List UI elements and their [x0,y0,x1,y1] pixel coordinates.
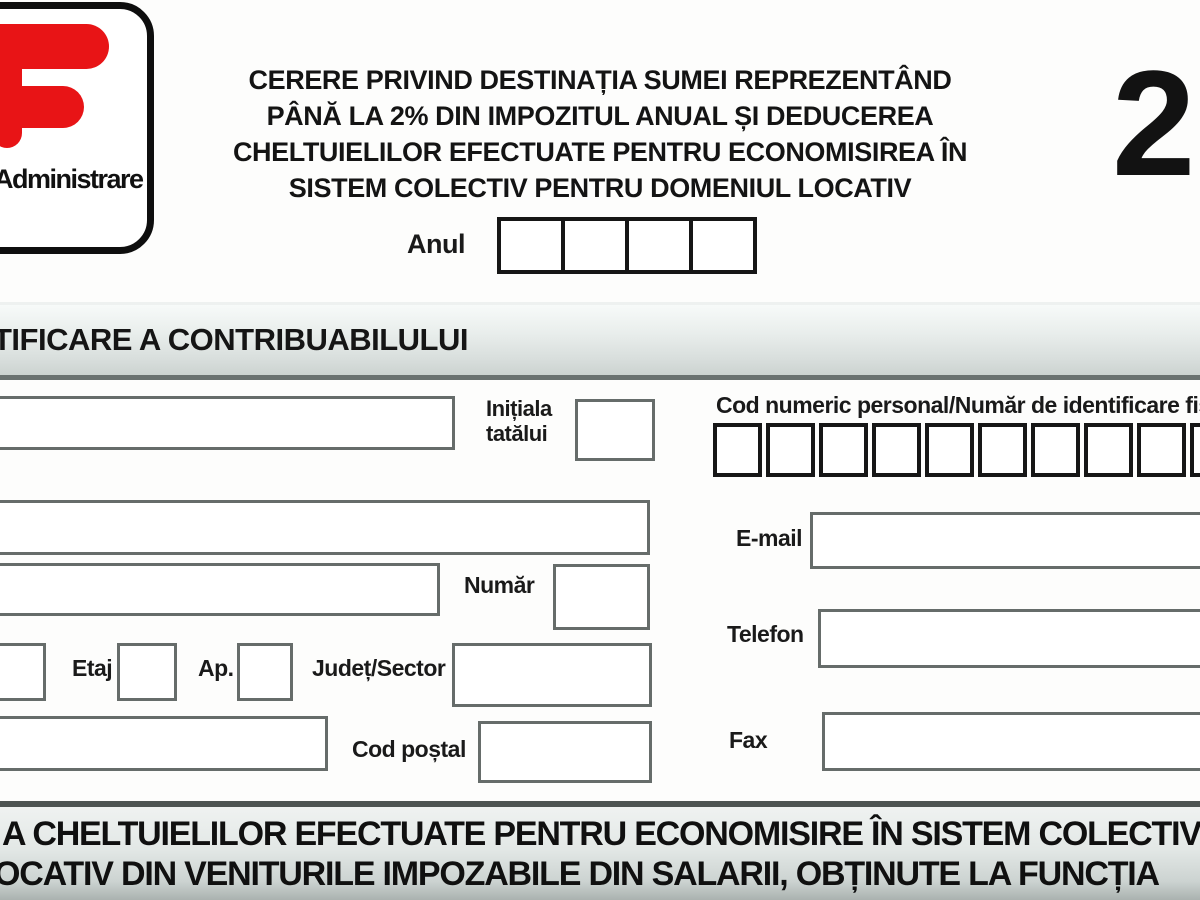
form-title-line: CERERE PRIVIND DESTINAȚIA SUMEI REPREZEN… [170,62,1030,98]
judet-label: Județ/Sector [312,655,445,682]
form-title-line: PÂNĂ LA 2% DIN IMPOZITUL ANUAL ȘI DEDUCE… [170,98,1030,134]
cnp-digit-cell[interactable] [1137,423,1186,477]
cod-postal-label: Cod poștal [352,736,466,763]
etaj-field[interactable] [117,643,177,701]
anaf-flag-icon [0,24,109,69]
form-title-line: SISTEM COLECTIV PENTRU DOMENIUL LOCATIV [170,170,1030,206]
logo-caption: Administrare [0,164,143,195]
cnp-digit-cell[interactable] [872,423,921,477]
telefon-field[interactable] [818,609,1200,668]
cnp-digit-cell[interactable] [1031,423,1080,477]
email-field[interactable] [810,512,1200,569]
section-deduction-bar: A CHELTUIELILOR EFECTUATE PENTRU ECONOMI… [0,801,1200,900]
telefon-label: Telefon [727,621,804,648]
fax-label: Fax [729,727,767,754]
form-title-line: CHELTUIELILOR EFECTUATE PENTRU ECONOMISI… [170,134,1030,170]
form-page: Administrare CERERE PRIVIND DESTINAȚIA S… [0,0,1200,900]
localitate-field[interactable] [0,716,328,771]
cnp-digit-cell[interactable] [1084,423,1133,477]
year-input-cells[interactable] [497,217,757,274]
form-title: CERERE PRIVIND DESTINAȚIA SUMEI REPREZEN… [170,62,1030,206]
section-deduction-line1: A CHELTUIELILOR EFECTUATE PENTRU ECONOMI… [2,815,1200,854]
year-digit-cell[interactable] [625,221,689,270]
cod-postal-field[interactable] [478,721,652,783]
numar-field[interactable] [553,564,650,630]
section-identification-bar: TIFICARE A CONTRIBUABILULUI [0,302,1200,380]
prenume-field[interactable] [0,500,650,555]
initiala-field[interactable] [575,399,655,461]
etaj-label: Etaj [72,655,112,682]
section-identification-title: TIFICARE A CONTRIBUABILULUI [0,322,468,358]
fax-field[interactable] [822,712,1200,771]
strada-field[interactable] [0,563,440,616]
name-field[interactable] [0,396,455,450]
cnp-digit-cell[interactable] [978,423,1027,477]
cnp-label: Cod numeric personal/Număr de identifica… [716,392,1200,419]
year-digit-cell[interactable] [689,221,753,270]
cnp-digit-cell[interactable] [1190,423,1200,477]
numar-label: Număr [464,572,534,599]
cnp-digit-cell[interactable] [766,423,815,477]
section-deduction-line2: OCATIV DIN VENITURILE IMPOZABILE DIN SAL… [0,855,1159,894]
anaf-logo: Administrare [0,2,154,254]
email-label: E-mail [736,525,802,552]
cnp-digit-cell[interactable] [925,423,974,477]
form-number: 2 [1112,48,1191,198]
initiala-label: tatălui [486,421,552,446]
judet-field[interactable] [452,643,652,707]
year-label: Anul [407,229,465,260]
ap-label: Ap. [198,655,234,682]
year-digit-cell[interactable] [561,221,625,270]
cnp-digit-cell[interactable] [819,423,868,477]
anaf-flag-icon [0,86,84,128]
ap-field[interactable] [237,643,293,701]
cnp-input-cells[interactable] [713,423,1200,477]
year-digit-cell[interactable] [501,221,561,270]
bloc-field[interactable] [0,643,46,701]
cnp-digit-cell[interactable] [713,423,762,477]
initiala-label: Inițiala [486,396,552,421]
